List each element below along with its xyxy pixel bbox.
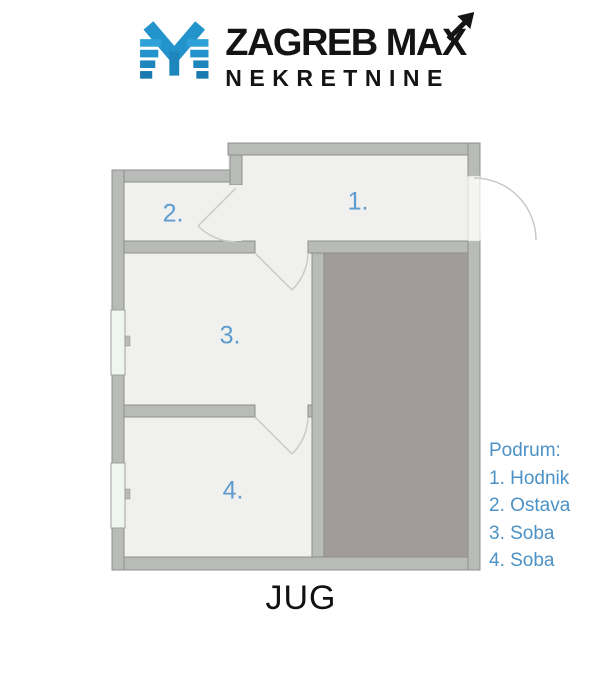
legend-item-soba-4: 4. Soba [489,547,570,575]
floorplan-page: ZAGREB MAX NEKRETNINE [0,0,602,673]
room-2-label: 2. [163,202,184,227]
room-legend: Podrum: 1. Hodnik 2. Ostava 3. Soba 4. S… [489,437,570,575]
room-3-label: 3. [220,324,241,349]
solid-area [324,253,468,557]
room-4-label: 4. [223,479,244,504]
orientation-label: JUG [266,581,337,615]
room-1-label: 1. [348,190,369,215]
legend-title: Podrum: [489,437,570,465]
legend-item-hodnik: 1. Hodnik [489,465,570,493]
legend-item-ostava: 2. Ostava [489,492,570,520]
legend-item-soba-3: 3. Soba [489,520,570,548]
